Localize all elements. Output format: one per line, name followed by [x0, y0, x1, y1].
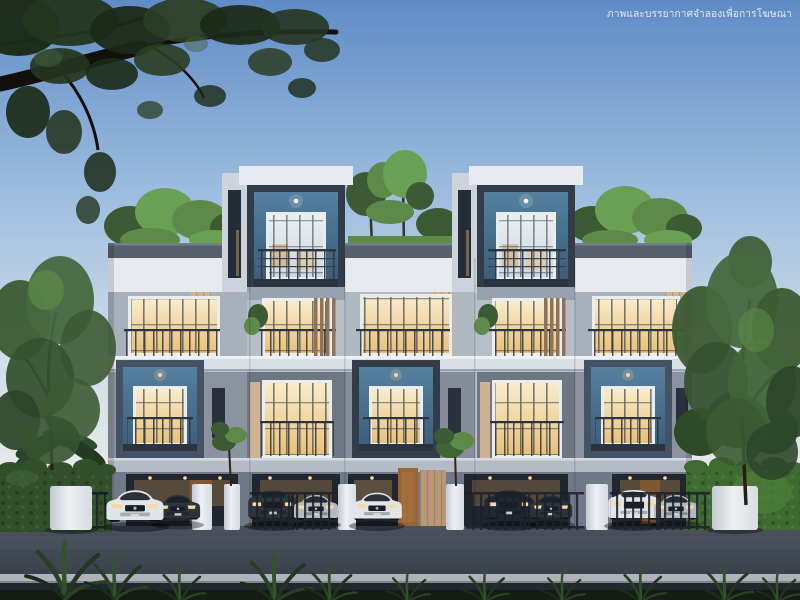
slit-window — [228, 190, 241, 278]
tower-right — [469, 166, 583, 300]
slit-window — [458, 190, 471, 278]
gate — [250, 492, 336, 530]
window-1f-tower-right — [480, 380, 564, 458]
architectural-render-photo: ภาพและบรรยากาศจำลองเพื่อการโฆษณา — [0, 0, 800, 600]
window-2f-right — [588, 296, 684, 356]
balcony-railing — [258, 249, 336, 284]
advertising-disclaimer-watermark: ภาพและบรรยากาศจำลองเพื่อการโฆษณา — [607, 7, 792, 22]
tower-left — [239, 166, 353, 300]
gate — [610, 492, 710, 530]
window-2f-left — [124, 296, 220, 356]
tower-wing-right — [452, 173, 477, 293]
second-floor — [108, 292, 692, 358]
balcony-railing — [488, 249, 566, 284]
left-tree — [0, 256, 116, 470]
pier — [446, 484, 464, 530]
upper-white-band — [108, 258, 692, 292]
gate — [466, 492, 584, 530]
balcony-box-1f-left — [116, 360, 204, 458]
tower-cap — [469, 166, 583, 185]
roof-garden-right — [568, 186, 702, 250]
ceiling-downlight — [626, 373, 630, 377]
ceiling-downlight — [158, 373, 162, 377]
window-1f-tower-left — [250, 380, 334, 458]
road — [0, 526, 800, 576]
parapet-caps — [108, 243, 692, 258]
pier — [586, 484, 608, 530]
window-2f-middle — [356, 294, 452, 356]
pier — [707, 486, 763, 534]
tower-wing-left — [222, 173, 247, 293]
balcony-box-1f-middle — [352, 360, 440, 458]
gate — [92, 492, 108, 530]
balcony-box-1f-right — [584, 360, 672, 458]
pier — [45, 486, 97, 534]
first-floor — [108, 360, 692, 460]
scene-canvas — [0, 0, 800, 600]
tower-cap — [239, 166, 353, 185]
ceiling-downlight — [394, 373, 398, 377]
